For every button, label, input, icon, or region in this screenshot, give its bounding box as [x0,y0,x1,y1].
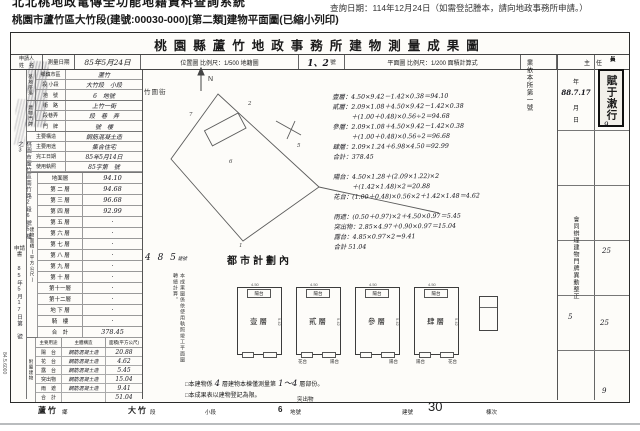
floor-label: 合 計 [38,327,83,337]
field-value: 蘆竹 [66,70,142,79]
field-value: 集合住宅 [66,142,142,151]
floor-row: 合 計 378.45 [38,327,142,338]
door-row: 街 路 上竹一街 [36,101,142,111]
floor-area-table: 建物面積(平方公尺) 地面層 94.10 第 二 層 94.68 第 三 層 9… [27,173,142,338]
roof-projection-outline [479,296,498,331]
field-label: 地 號 [36,90,66,100]
field-label: 鄉鎮市區 [36,70,66,79]
balcony-box: 陽台 [365,289,389,298]
floor-label: 第 九 層 [38,261,83,271]
floor-area-value: · [83,294,142,304]
field-value: 6 地號 [66,90,142,100]
floor-plan: 4.50 陽台 貳層 9.42 花台 陽台 [296,283,341,375]
handwritten-mark: 25 [602,247,611,255]
floor-label: 第十一層 [38,283,83,293]
balcony-box: 陽台 [247,289,271,298]
floor-table-side-label: 建物面積(平方公尺) [27,173,38,337]
annex-row: 合 計 51.04 [36,393,142,402]
annex-use: 露 台 [36,366,62,374]
footnote-line2: □本成果表以建物登記為限。 [185,390,261,399]
doorplate-correction-note: 會同辦理建物門牌異動整正 [571,133,580,383]
calculation-line: 合計 51.04 [334,241,534,253]
site-row: 段 小段 大竹段 小段 [36,80,142,90]
field-value: 鋼筋混凝土造 [66,132,142,141]
floor-row: 第 六 層 · [38,228,142,239]
document-title-line: 桃園市蘆竹區大竹段(建號:00030-000)[第二類]建物平面圖(已縮小列印) [12,12,339,27]
application-form-label: 申請書 [13,246,26,258]
handwritten-mark: 9 [604,121,608,129]
floor-area-value: · [83,239,142,249]
field-label: 段 小段 [36,80,66,89]
handwritten-floor-count: 4 [213,379,222,389]
parcel-number-label: 7 [189,112,193,118]
floor-area-value: 378.45 [83,327,142,337]
site-row: 地 號 6 地號 [36,90,142,100]
signature-strip: 年 88.7.17 月 日 會同辦理建物門牌異動整正 賦于潄行 長員員員員 92… [557,54,629,400]
floor-area-value: · [83,305,142,315]
annex-row: 雨 遮 鋼筋混凝土造 9.41 [36,384,142,393]
floor-label: 第 十 層 [38,272,83,282]
annex-notch [360,352,372,358]
handwritten-mark: 9 [602,387,606,395]
floor-area-value: · [83,250,142,260]
annex-notch [301,352,313,358]
annex-use: 花 台 [36,357,62,365]
door-section-label: 建物門牌 [27,101,36,131]
sheet-title: 桃園縣蘆竹地政事務所建物測量成果圖 [11,35,629,54]
floor-row: 第 九 層 · [38,261,142,272]
field-value: 大竹段 小段 [66,80,142,89]
annex-notch [419,352,431,358]
floor-row: 第 二 層 94.68 [38,184,142,195]
annex-row: 花 台 鋼筋混凝土造 4.62 [36,357,142,366]
info-row: 主要構造 鋼筋混凝土造 [27,132,142,142]
approval-date-column: 年 88.7.17 月 日 會同辦理建物門牌異動整正 [558,55,594,400]
building-number-annotation: 4 8 5建號 [145,253,187,263]
floor-row: 第 十 層 · [38,272,142,283]
annex-use: 陽 台 [36,348,62,356]
query-date-note: 查詢日期：114年12月24日（如需登記謄本，請向地政事務所申請。） [330,2,588,14]
system-title: 北北桃地政電傳全功能地籍資料查詢系統 [12,0,246,10]
floor-plan-label: 貳層 [297,316,340,327]
balcony-box: 陽台 [424,289,448,298]
parcel-number-label: 6 [229,159,233,165]
transcription-note: 本成果圖係依使用執照竣工平面圖轉繪計算。 [171,273,185,363]
floor-row: 第十二層 · [38,294,142,305]
floor-row: 第 三 層 96.68 [38,195,142,206]
field-label: 完工日期 [27,152,66,161]
floor-label: 第 五 層 [38,217,83,227]
floor-label: 騎 樓 [38,316,83,326]
annex-use: 雨 遮 [36,384,62,392]
footer-item: 6 [278,405,284,414]
floor-row: 地面層 94.10 [38,173,142,184]
floor-area-value: · [83,283,142,293]
street-name-label: 竹圍街 [144,86,167,96]
floor-row: 第十一層 · [38,283,142,294]
annex-label-right: 陽台 [330,359,339,365]
footer-item: 30 [428,399,442,414]
area-calculation-block: 壹層：4.50×9.42－1.42×0.38＝94.10貳層：2.09×1.08… [332,91,534,253]
info-block: 主要構造 鋼筋混凝土造 主要用途 集合住宅 完工日期 85年5月14日 使用執照… [27,132,142,173]
floor-plan: 4.50 陽台 參層 9.42 陽台 [355,283,400,375]
floor-outline: 陽台 貳層 9.42 [296,287,341,355]
footer-item: 小段 [205,408,216,416]
floor-area-value: · [83,261,142,271]
parcel-number-label: 1 [239,243,243,249]
field-value: 號 樓 [66,121,142,131]
floor-label: 第 四 層 [38,206,83,216]
annex-structure: 鋼筋混凝土造 [62,348,106,356]
floor-label: 第 二 層 [38,184,83,194]
field-value: 段 巷 弄 [66,111,142,120]
floor-plan-row: 4.50 陽台 壹層 9.42 4.50 陽台 [237,283,459,375]
footer-item: 蘆竹 [38,405,58,416]
floor-outline: 陽台 肆層 9.42 [414,287,459,355]
floor-label: 第 八 層 [38,250,83,260]
handwritten-mark: 5 [568,313,572,321]
field-value: 85字第 號 [66,162,142,171]
balcony-box: 陽台 [306,289,330,298]
annex-notch [322,352,336,358]
annex-area: 4.62 [106,357,142,365]
site-section-label: 基地座落 [27,70,36,100]
info-row: 使用執照 85字第 號 [27,162,142,172]
floor-row: 第 五 層 · [38,217,142,228]
annex-label-left: 陽台 [416,359,425,365]
parcel-number-label: 2 [248,101,252,107]
floor-plan-label: 壹層 [238,316,281,327]
annex-row: 露 台 鋼筋混凝土造 5.45 [36,366,142,375]
floor-label: 第 六 層 [38,228,83,238]
field-label: 主要構造 [27,132,66,141]
annex-use: 合 計 [36,393,62,402]
signature-cell-label: 員 [610,55,616,63]
annex-row: 陽 台 鋼筋混凝土造 20.88 [36,348,142,357]
annex-area: 15.04 [106,375,142,383]
floor-area-value: 94.68 [83,184,142,194]
floor-label: 第 七 層 [38,239,83,249]
floor-area-value: · [83,272,142,282]
annex-structure: 鋼筋混凝土造 [62,384,106,392]
footnote-line1: □本建物係4層建物本棟僅測量第1～4層部份。 [185,377,323,389]
footer-item: 地號 [290,408,301,416]
floor-area-value: · [83,316,142,326]
floor-outline: 陽台 壹層 9.42 [237,287,282,355]
dimension-label: 9.42 [277,318,282,326]
receipt-number-vertical: 85年5月17日第 號 [15,266,23,362]
floor-row: 第 七 層 · [38,239,142,250]
floor-plan-label: 參層 [356,316,399,327]
annex-notch [440,352,454,358]
door-plate-block: 建物門牌 街 路 上竹一街 段巷弄 段 巷 弄 門 牌 號 樓 [27,101,142,132]
annex-notch [242,352,254,358]
annex-structure [62,393,106,402]
dimension-label: 9.42 [454,318,459,326]
annex-header-row: 主要用途 主體構造 面積(平方公尺) [36,338,142,348]
dimension-label: 9.42 [336,318,341,326]
approval-date-stamp: 88.7.17 [558,88,594,97]
door-row: 門 牌 號 樓 [36,121,142,131]
floor-label: 地 下 層 [38,305,83,315]
floor-row: 第 八 層 · [38,250,142,261]
info-row: 完工日期 85年5月14日 [27,152,142,162]
floor-area-value: 96.68 [83,195,142,205]
field-label: 主要用途 [27,142,66,151]
approval-reference-note: 業依本所第一號 [523,59,533,145]
floor-area-value: 92.99 [83,206,142,216]
handwritten-mark: 25 [600,319,609,327]
floor-label: 第 三 層 [38,195,83,205]
north-arrow-icon [198,68,204,91]
name-seal-stamp: 賦于潄行 [598,69,624,127]
urban-plan-note: 都市計劃內 [227,252,292,267]
page-bottom-rule [0,423,640,425]
site-row: 鄉鎮市區 蘆竹 [36,70,142,80]
floor-outline: 陽台 參層 9.42 [355,287,400,355]
floor-row: 第 四 層 92.99 [38,206,142,217]
field-label: 門 牌 [36,121,66,131]
floor-label: 地面層 [38,173,83,183]
footer-item: 棟次 [486,408,497,416]
field-label: 段巷弄 [36,111,66,120]
footer-item: 大竹 [128,405,148,416]
form-print-code: 84.5.6000 [1,352,7,398]
annex-table: 附屬建物 主要用途 主體構造 面積(平方公尺) 陽 台 鋼筋混凝土造 20.88 [27,338,142,402]
survey-date-value: 85年5月24日 [75,55,141,69]
annex-structure: 鋼筋混凝土造 [62,366,106,374]
floor-plan: 4.50 陽台 壹層 9.42 [237,283,282,375]
projection-label: 突出物 [297,395,314,403]
info-row: 主要用途 集合住宅 [27,142,142,152]
annex-area: 51.04 [106,393,142,402]
annex-notch [381,352,395,358]
annex-label-right: 花台 [448,359,457,365]
handwritten-floor-range: 1～4 [276,379,299,389]
floor-area-value: 94.10 [83,173,142,183]
field-label: 街 路 [36,101,66,110]
field-value: 85年5月14日 [66,152,142,161]
footer-item: 段 [150,408,156,416]
floor-plan: 4.50 陽台 肆層 9.42 陽台 花台 [414,283,459,375]
dimension-label: 9.42 [395,318,400,326]
annex-area: 9.41 [106,384,142,392]
floor-label: 第十二層 [38,294,83,304]
floor-area-value: · [83,217,142,227]
floor-row: 地 下 層 · [38,305,142,316]
annex-label-right: 陽台 [389,359,398,365]
left-field-panel: 基地座落 鄉鎮市區 蘆竹 段 小段 大竹段 小段 地 號 6 地號 [27,70,143,399]
north-label: N [208,76,213,83]
annex-use: 突出物 [36,375,62,383]
field-value: 上竹一街 [66,101,142,110]
annex-structure: 鋼筋混凝土造 [62,357,106,365]
survey-result-sheet: 桃園縣蘆竹地政事務所建物測量成果圖 申請人 姓 名 測量日期 85年5月24日 … [10,32,630,403]
annex-label-left: 花台 [298,359,307,365]
floor-row: 騎 樓 · [38,316,142,327]
floor-plan-label: 肆層 [415,316,458,327]
footer-item: 建號 [402,408,413,416]
door-row: 段巷弄 段 巷 弄 [36,111,142,121]
strip-divider [594,55,595,400]
screen: 北北桃地政電傳全功能地籍資料查詢系統 查詢日期：114年12月24日（如需登記謄… [0,0,640,431]
annex-side-label: 附屬建物 [27,338,36,402]
floor-area-value: · [83,228,142,238]
annex-row: 突出物 鋼筋混凝土造 15.04 [36,375,142,384]
annex-structure: 鋼筋混凝土造 [62,375,106,383]
annex-area: 20.88 [106,348,142,356]
site-block: 基地座落 鄉鎮市區 蘆竹 段 小段 大竹段 小段 地 號 6 地號 [27,70,142,101]
field-label: 使用執照 [27,162,66,171]
parcel-number-label: 5 [297,143,301,149]
annex-area: 5.45 [106,366,142,374]
annex-notch [263,352,277,358]
footer-item: 鄉 [62,408,68,416]
